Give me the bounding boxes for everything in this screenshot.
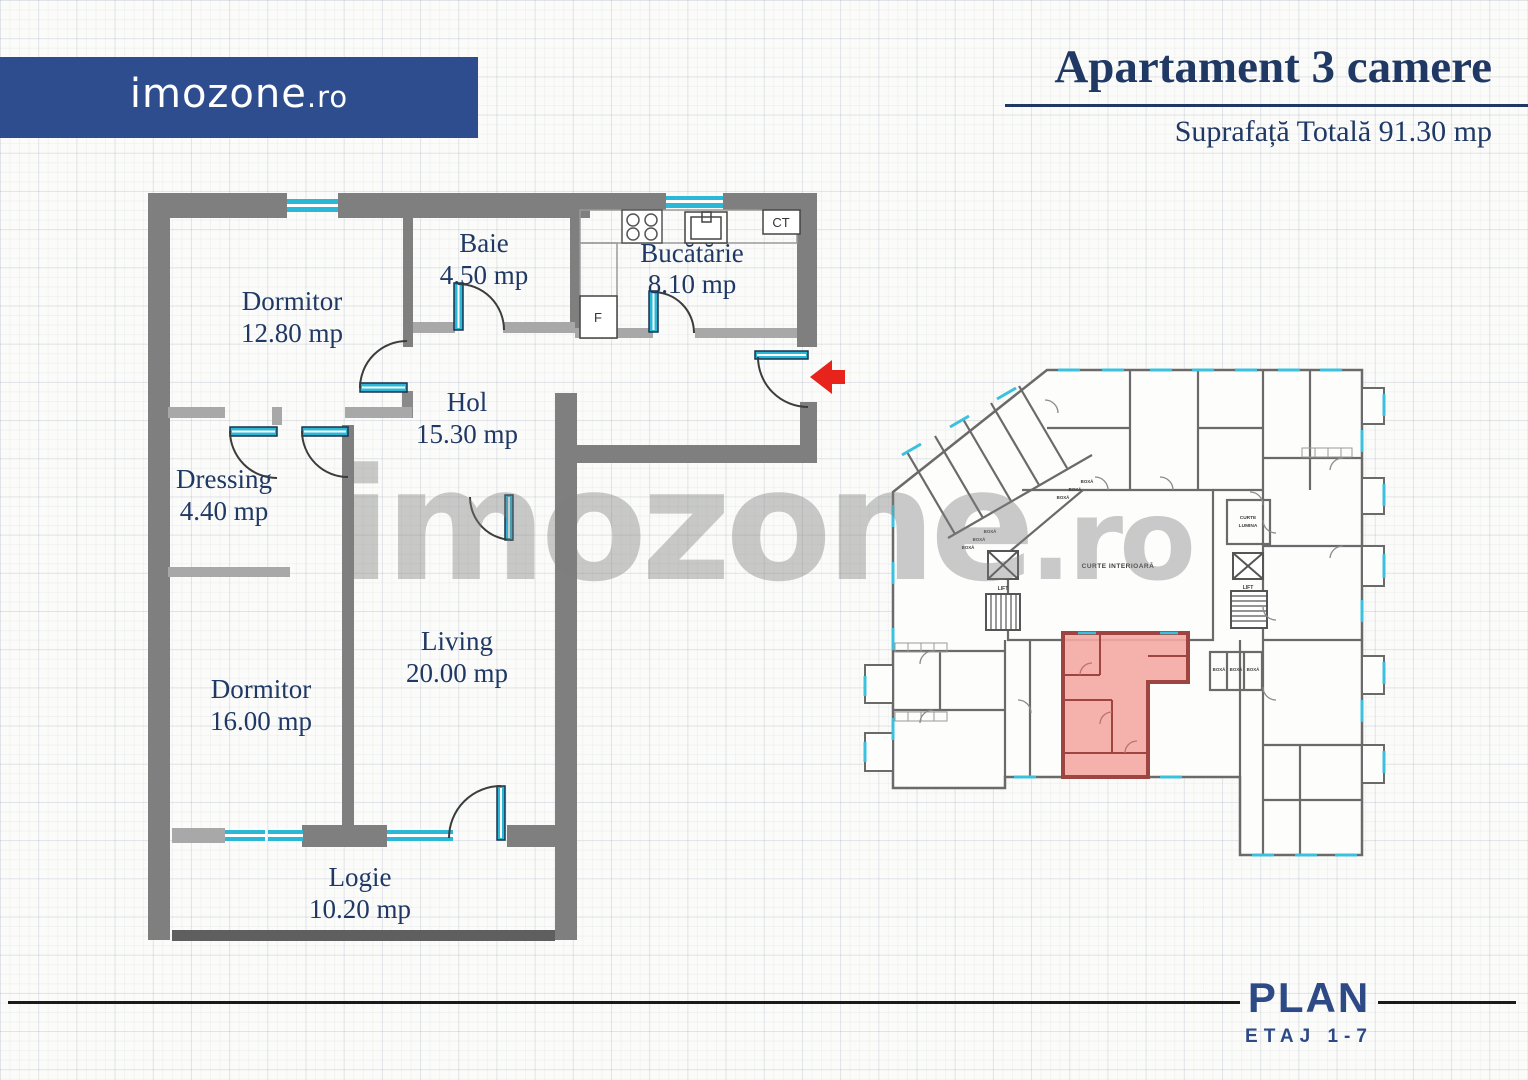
svg-text:Hol: Hol — [447, 387, 488, 417]
storage-label: BOXĂ — [973, 537, 987, 542]
boiler-label: CT — [772, 215, 789, 230]
room-label-hol: Hol 15.30 mp — [416, 387, 518, 449]
svg-text:16.00 mp: 16.00 mp — [210, 706, 312, 736]
svg-text:Logie: Logie — [329, 862, 392, 892]
window — [268, 830, 303, 841]
door-panel — [302, 427, 348, 436]
footer-rule-long — [8, 1001, 1240, 1004]
storage-label: BOXĂ — [1230, 667, 1244, 672]
room-label-dormitor-1: Dormitor 12.80 mp — [241, 286, 343, 348]
logo-text: imozone — [130, 71, 307, 117]
footer-floors-label: ETAJ 1-7 — [1240, 1026, 1378, 1048]
storage-label: BOXĂ — [1069, 487, 1083, 492]
door-panel — [360, 383, 407, 392]
logie-outer-wall — [172, 930, 555, 941]
lift-label: LIFT — [998, 586, 1009, 592]
room-label-dressing: Dressing 4.40 mp — [176, 464, 272, 526]
doors-layer — [230, 283, 808, 840]
svg-text:4.40 mp: 4.40 mp — [180, 496, 269, 526]
svg-text:12.80 mp: 12.80 mp — [241, 318, 343, 348]
svg-text:10.20 mp: 10.20 mp — [309, 894, 411, 924]
svg-text:Dormitor: Dormitor — [211, 674, 312, 704]
footer-plan-label: PLAN — [1240, 974, 1378, 1022]
room-label-baie: Baie 4.50 mp — [440, 228, 529, 290]
storage-label: BOXĂ — [962, 545, 976, 550]
door-panel — [505, 495, 513, 540]
room-label-living: Living 20.00 mp — [406, 626, 508, 688]
storage-label: BOXĂ — [1247, 667, 1261, 672]
room-label-bucatarie: Bucătărie 8.10 mp — [640, 238, 743, 299]
lift-box — [1233, 553, 1263, 579]
window — [225, 830, 265, 841]
room-label-logie: Logie 10.20 mp — [309, 862, 411, 924]
svg-text:20.00 mp: 20.00 mp — [406, 658, 508, 688]
svg-text:8.10 mp: 8.10 mp — [648, 269, 737, 299]
door-panel — [454, 283, 463, 330]
svg-text:Bucătărie: Bucătărie — [640, 238, 743, 268]
footer-rule-short — [1378, 1001, 1516, 1004]
floor-plan-canvas: CT F Dormitor 12.80 mp Baie 4.50 mp Bucă… — [0, 0, 1528, 1080]
light-court-label: LUMINA — [1239, 523, 1258, 529]
site-footprint — [893, 370, 1362, 855]
page-title: Apartament 3 camere — [1005, 40, 1528, 107]
svg-text:Dressing: Dressing — [176, 464, 272, 494]
door-arcs — [230, 284, 808, 838]
door-panel — [755, 351, 808, 359]
light-court-label: CURTE — [1240, 515, 1257, 521]
storage-label: BOXĂ — [984, 529, 998, 534]
room-label-dormitor-2: Dormitor 16.00 mp — [210, 674, 312, 736]
site-plan: LIFT LIFT — [865, 370, 1384, 855]
window — [287, 199, 338, 212]
svg-text:Baie: Baie — [459, 228, 508, 258]
logo-bar: imozone.ro — [0, 57, 478, 138]
window — [387, 830, 453, 841]
lift-box — [988, 551, 1018, 579]
window — [666, 196, 723, 208]
svg-text:Living: Living — [421, 626, 493, 656]
storage-label: BOXĂ — [1213, 667, 1227, 672]
svg-text:15.30 mp: 15.30 mp — [416, 419, 518, 449]
title-block: Apartament 3 camere Suprafață Totală 91.… — [1005, 40, 1528, 149]
door-panel — [497, 786, 505, 840]
logo-tld: .ro — [307, 80, 348, 114]
entry-arrow-icon — [810, 360, 845, 394]
fridge-label: F — [594, 310, 602, 325]
page: imozone.ro Apartament 3 camere Suprafață… — [0, 0, 1528, 1080]
storage-label: BOXĂ — [1057, 495, 1071, 500]
svg-text:4.50 mp: 4.50 mp — [440, 260, 529, 290]
svg-text:Dormitor: Dormitor — [242, 286, 343, 316]
door-panel — [230, 427, 277, 436]
apartment-floor-plan: CT F Dormitor 12.80 mp Baie 4.50 mp Bucă… — [148, 193, 845, 941]
courtyard-label: CURTE INTERIOARĂ — [1082, 561, 1155, 570]
storage-label: BOXĂ — [1081, 479, 1095, 484]
page-subtitle: Suprafață Totală 91.30 mp — [1005, 115, 1492, 149]
